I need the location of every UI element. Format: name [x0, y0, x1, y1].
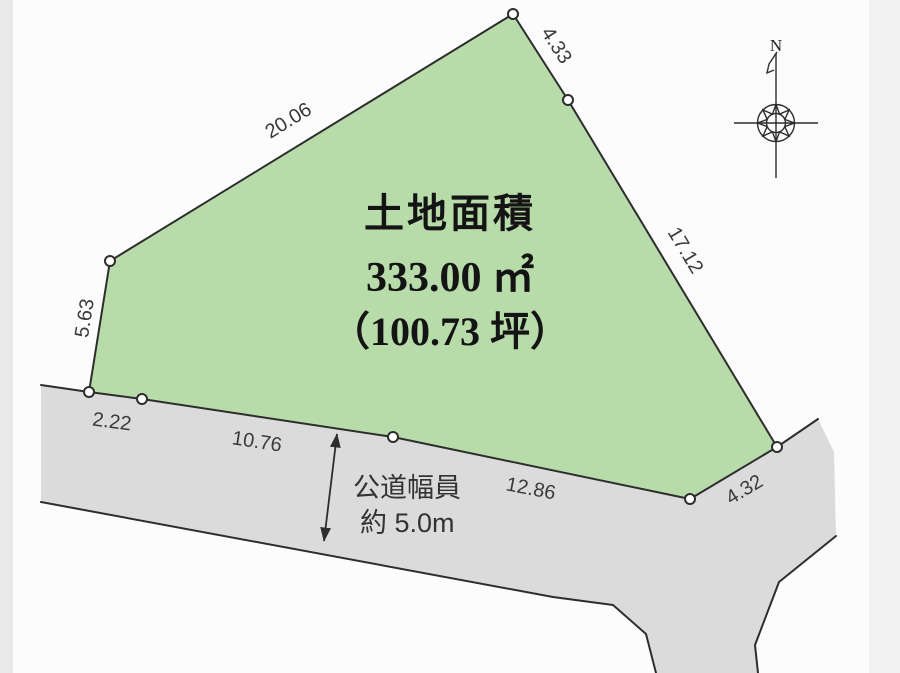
compass-rose: N: [734, 36, 818, 178]
compass-north-label: N: [770, 36, 782, 55]
right-margin-strip: [869, 0, 900, 673]
site-plan-canvas: 20.06 4.33 17.12 5.63 2.22 10.76 12.86 4…: [0, 0, 900, 673]
vertex-marker: [508, 9, 518, 19]
dimension-nw-edge: 20.06: [261, 98, 315, 143]
vertex-marker: [137, 394, 147, 404]
vertex-marker: [563, 95, 573, 105]
vertex-marker: [772, 442, 782, 452]
vertex-marker: [388, 432, 398, 442]
vertex-marker: [105, 256, 115, 266]
land-area-heading: 土地面積: [364, 191, 536, 236]
vertex-marker: [685, 494, 695, 504]
road-width-label-line1: 公道幅員: [353, 473, 461, 503]
land-area-square-meters: 333.00 ㎡: [366, 253, 534, 301]
left-margin-strip: [0, 0, 13, 673]
road-width-label-line2: 約 5.0m: [360, 508, 455, 538]
land-area-tsubo: （100.73 坪）: [330, 309, 570, 354]
vertex-marker: [84, 387, 94, 397]
site-plan-diagram: 20.06 4.33 17.12 5.63 2.22 10.76 12.86 4…: [0, 0, 900, 673]
dimension-w-edge: 5.63: [71, 297, 99, 339]
